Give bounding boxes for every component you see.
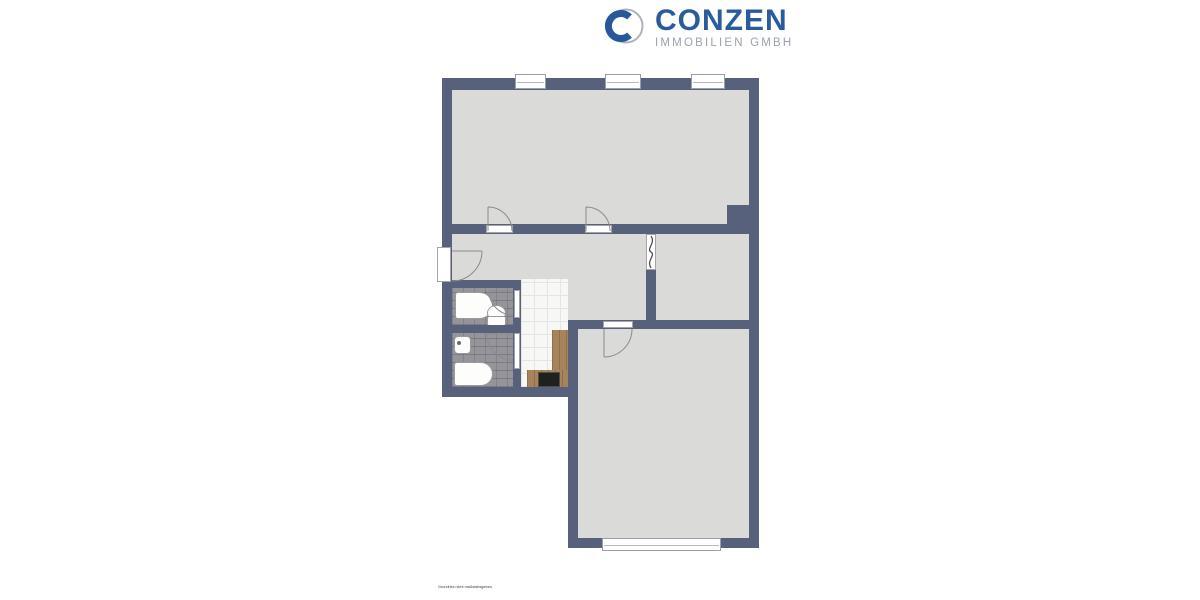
wall-bottom-left-section (442, 387, 578, 397)
wall-bath-north (442, 280, 521, 288)
door-bathroom-1 (514, 290, 520, 318)
bottom-room-floor (578, 329, 749, 538)
floorplan-page: CONZEN IMMOBILIEN GMBH (0, 0, 1200, 600)
window-pane (607, 82, 639, 83)
basin-faucet-icon (457, 341, 461, 345)
wall-bottom-room-west (568, 320, 578, 548)
wall-middle-south (568, 320, 759, 329)
window-top-1 (515, 74, 546, 89)
conzen-logo: CONZEN IMMOBILIEN GMBH (601, 2, 793, 49)
window-pane (693, 82, 723, 83)
bathtub-2 (454, 362, 493, 386)
entrance-door (437, 247, 451, 282)
door-top-room-1 (486, 225, 513, 233)
wash-basin (454, 336, 471, 354)
hallway-floor (452, 234, 646, 280)
plan-footnote: Grundriss nicht maßstabsgetreu (438, 585, 492, 589)
wall-right (749, 78, 759, 548)
window-top-2 (605, 74, 641, 89)
brand-tagline: IMMOBILIEN GMBH (655, 37, 793, 49)
top-room-floor (452, 90, 749, 224)
window-pane (517, 82, 544, 83)
wall-bath-divider (442, 325, 521, 333)
brand-name: CONZEN (655, 7, 793, 35)
door-bottom-room (603, 321, 633, 328)
window-pane (604, 545, 719, 546)
stove (538, 372, 560, 387)
wall-left (442, 78, 452, 397)
door-top-room-2 (585, 225, 612, 233)
c-ring-icon (601, 2, 647, 49)
middle-right-room-floor (656, 234, 749, 320)
door-bathroom-2 (514, 333, 520, 369)
wall-pillar (727, 205, 749, 224)
window-top-3 (691, 74, 725, 89)
hallway-floor-lower (568, 280, 646, 320)
folding-door (646, 234, 656, 270)
window-bottom (602, 538, 721, 551)
